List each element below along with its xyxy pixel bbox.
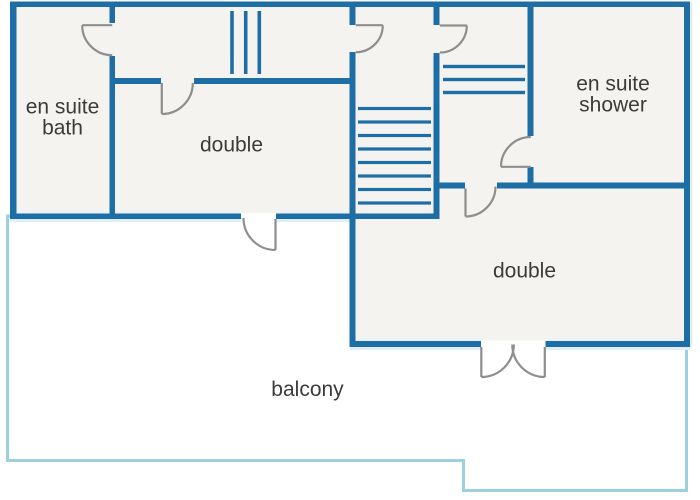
svg-text:bath: bath xyxy=(42,117,83,140)
svg-text:en suite: en suite xyxy=(576,73,650,96)
svg-text:double: double xyxy=(200,134,263,157)
svg-text:balcony: balcony xyxy=(271,378,344,401)
svg-text:en suite: en suite xyxy=(26,96,100,119)
svg-text:shower: shower xyxy=(579,94,647,117)
svg-text:double: double xyxy=(493,260,556,283)
